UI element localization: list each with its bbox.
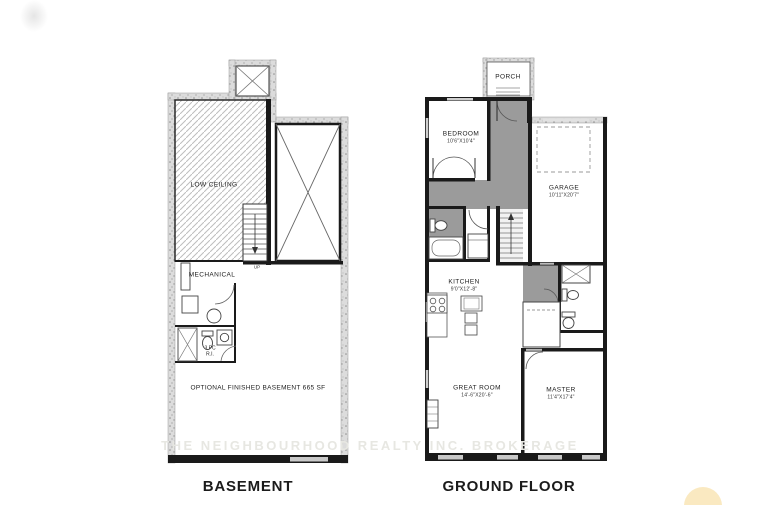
kitchen-fixtures [427,293,482,337]
garage-dims: 10'11"X20'7" [549,193,579,198]
basement-note: OPTIONAL FINISHED BASEMENT 665 SF [191,386,326,393]
hall-door-gap [540,263,554,265]
ground-floor-title: GROUND FLOOR [443,478,576,495]
basement-unexcavated-bay [276,124,340,261]
garage-dashed-pad [537,127,590,172]
brokerage-watermark: THE NEIGHBOURHOOD REALTY INC. BROKERAGE [150,438,590,453]
basement-title: BASEMENT [203,478,294,495]
fridge-icon [468,234,488,258]
ground-floor-plan [425,58,607,461]
basement-stairs [243,204,267,261]
master-dims: 11'4"X17'4" [547,395,574,400]
stairs-up-label: UP [254,266,260,271]
walkin-closet [523,302,560,347]
porch-label: PORCH [495,75,520,82]
floorplan-page: LOW CEILING MECHANICAL 3 PC R.I. UP OPTI… [0,0,760,505]
media-niche [427,400,438,428]
mechanical-label: MECHANICAL [189,273,236,280]
kitchen-label: KITCHEN [448,280,479,287]
basement-window-well [236,66,269,96]
great-room-dims: 14'-6"X20'-6" [461,393,492,398]
basement-plan [168,60,348,463]
low-ceiling-label: LOW CEILING [190,183,237,190]
ground-stairs [500,209,523,262]
master-door-gap [526,349,542,351]
bedroom-label: BEDROOM [443,132,479,139]
kitchen-dims: 9'0"X12'-8" [451,287,478,292]
linen-closet [562,265,590,283]
bath-ri-label: R.I. [206,352,214,357]
basement-bottom-wall [168,455,348,463]
ensuite-fixtures [562,289,579,329]
great-room-label: GREAT ROOM [453,386,501,393]
garage-label: GARAGE [549,186,579,193]
master-label: MASTER [546,388,576,395]
floorplan-drawing [0,0,760,505]
bedroom-dims: 10'6"X10'4" [447,139,475,144]
